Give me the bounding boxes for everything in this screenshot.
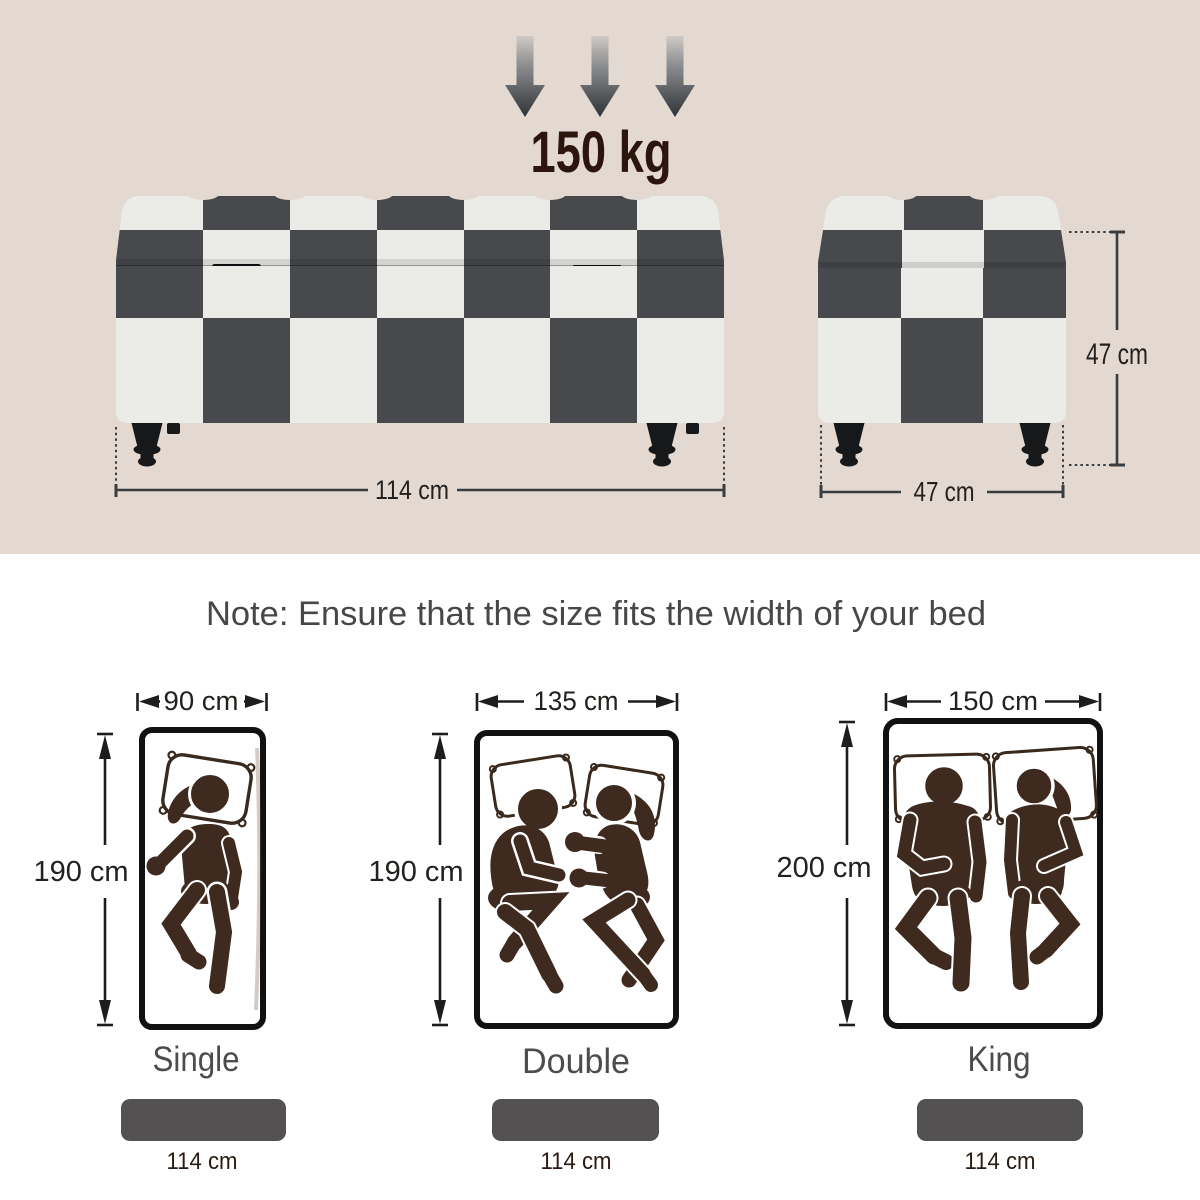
- svg-text:47 cm: 47 cm: [914, 476, 975, 507]
- svg-text:150 cm: 150 cm: [948, 686, 1038, 716]
- svg-text:114 cm: 114 cm: [167, 1148, 238, 1175]
- svg-text:150 kg: 150 kg: [531, 120, 672, 185]
- svg-text:114 cm: 114 cm: [541, 1148, 612, 1175]
- svg-text:200 cm: 200 cm: [776, 852, 871, 884]
- svg-text:114 cm: 114 cm: [965, 1148, 1036, 1175]
- svg-text:Note: Ensure that the size fit: Note: Ensure that the size fits the widt…: [206, 595, 986, 633]
- svg-text:King: King: [968, 1040, 1031, 1079]
- svg-text:47 cm: 47 cm: [1086, 338, 1148, 371]
- svg-text:114 cm: 114 cm: [375, 475, 449, 505]
- svg-text:190 cm: 190 cm: [33, 856, 128, 888]
- svg-text:90 cm: 90 cm: [164, 686, 239, 716]
- svg-text:Double: Double: [522, 1042, 630, 1081]
- svg-text:190 cm: 190 cm: [368, 856, 463, 888]
- svg-text:135 cm: 135 cm: [534, 686, 619, 716]
- svg-text:Single: Single: [153, 1040, 240, 1079]
